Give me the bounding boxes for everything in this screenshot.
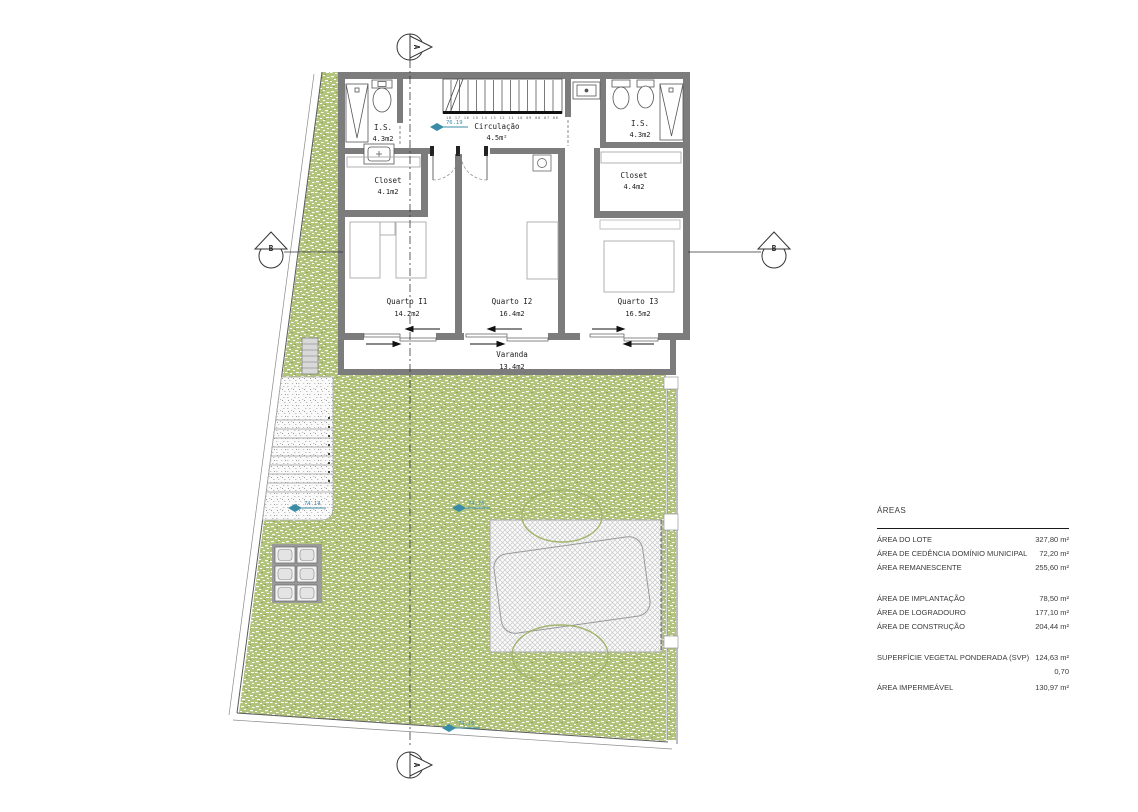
room-label-is-left: I.S. (374, 123, 392, 132)
toilet-icon (612, 80, 630, 109)
svg-text:A: A (412, 763, 421, 768)
varanda-garden-steps (302, 338, 318, 374)
room-label-circulacao: Circulação (474, 122, 520, 131)
area-row-lote: ÁREA DO LOTE 327,80 m² (877, 535, 1069, 549)
room-area-quarto-i2: 16.4m2 (499, 310, 524, 318)
room-label-varanda: Varanda (496, 350, 528, 359)
room-area-quarto-i1: 14.2m2 (394, 310, 419, 318)
svg-text:74.75: 74.75 (468, 501, 485, 507)
section-marker-a-bottom: A (397, 752, 432, 778)
svg-text:B: B (772, 244, 777, 253)
room-area-is-right: 4.3m2 (629, 131, 650, 139)
area-value: 72,20 m² (1039, 549, 1069, 558)
toilet-icon (372, 80, 392, 112)
area-label: ÁREA IMPERMEÁVEL (877, 683, 953, 692)
area-value: 177,10 m² (1035, 608, 1069, 617)
areas-table-title: ÁREAS (877, 506, 1069, 516)
area-label: ÁREA DE LOGRADOURO (877, 608, 966, 617)
area-label: ÁREA DE CONSTRUÇÃO (877, 622, 965, 631)
svg-text:74.10: 74.10 (458, 721, 475, 727)
room-label-quarto-i2: Quarto I2 (492, 297, 533, 306)
area-value: 204,44 m² (1035, 622, 1069, 631)
area-value: 124,63 m² (1035, 653, 1069, 662)
area-row-svp: SUPERFÍCIE VEGETAL PONDERADA (SVP) 124,6… (877, 653, 1069, 667)
room-label-closet-right: Closet (620, 171, 647, 180)
entrance-path (263, 377, 333, 520)
area-label: ÁREA DE CEDÊNCIA DOMÍNIO MUNICIPAL (877, 549, 1027, 558)
room-area-closet-left: 4.1m2 (377, 188, 398, 196)
area-value: 0,70 (1054, 667, 1069, 676)
room-area-closet-right: 4.4m2 (623, 183, 644, 191)
stair-step-numbers: 18 17 16 15 14 13 12 11 10 09 08 07 06 (446, 116, 558, 120)
svg-text:74.14: 74.14 (304, 501, 321, 507)
vanity-sink-icon (573, 82, 600, 99)
pavers-grid (272, 544, 322, 603)
room-label-quarto-i1: Quarto I1 (387, 297, 428, 306)
area-label: ÁREA REMANESCENTE (877, 563, 962, 572)
area-row-implantacao: ÁREA DE IMPLANTAÇÃO 78,50 m² (877, 594, 1069, 608)
bidet-icon (637, 80, 654, 108)
area-value: 78,50 m² (1039, 594, 1069, 603)
area-row-remanescente: ÁREA REMANESCENTE 255,60 m² (877, 563, 1069, 577)
area-value: 327,80 m² (1035, 535, 1069, 544)
section-marker-a-top: A (397, 34, 432, 60)
room-label-is-right: I.S. (631, 119, 649, 128)
area-row-svp-factor: 0,70 (877, 667, 1069, 681)
room-area-quarto-i3: 16.5m2 (625, 310, 650, 318)
room-label-quarto-i3: Quarto I3 (618, 297, 659, 306)
shower-icon (660, 84, 683, 140)
hedge-strip (664, 377, 678, 740)
area-label: ÁREA DE IMPLANTAÇÃO (877, 594, 965, 603)
section-marker-b-left: B (255, 232, 287, 268)
area-value: 255,60 m² (1035, 563, 1069, 572)
area-value: 130,97 m² (1035, 683, 1069, 692)
svg-text:A: A (412, 45, 421, 50)
room-area-circulacao: 4.5m² (486, 134, 507, 142)
areas-table: ÁREAS ÁREA DO LOTE 327,80 m² ÁREA DE CED… (877, 506, 1069, 697)
area-row-construcao: ÁREA DE CONSTRUÇÃO 204,44 m² (877, 622, 1069, 636)
areas-table-rule (877, 528, 1069, 529)
shower-icon (346, 84, 368, 142)
area-label: ÁREA DO LOTE (877, 535, 932, 544)
room-area-is-left: 4.3m2 (372, 135, 393, 143)
area-row-logradouro: ÁREA DE LOGRADOURO 177,10 m² (877, 608, 1069, 622)
room-area-varanda: 13.4m2 (499, 363, 524, 371)
room-label-closet-left: Closet (374, 176, 401, 185)
svg-text:76.19: 76.19 (446, 120, 463, 126)
area-row-impermeavel: ÁREA IMPERMEÁVEL 130,97 m² (877, 683, 1069, 697)
sink-icon (364, 144, 394, 164)
svg-text:B: B (269, 244, 274, 253)
stairs: 18 17 16 15 14 13 12 11 10 09 08 07 06 (443, 79, 562, 120)
area-row-cedencia: ÁREA DE CEDÊNCIA DOMÍNIO MUNICIPAL 72,20… (877, 549, 1069, 563)
area-label: SUPERFÍCIE VEGETAL PONDERADA (SVP) (877, 653, 1029, 662)
section-marker-b-right: B (758, 232, 790, 268)
